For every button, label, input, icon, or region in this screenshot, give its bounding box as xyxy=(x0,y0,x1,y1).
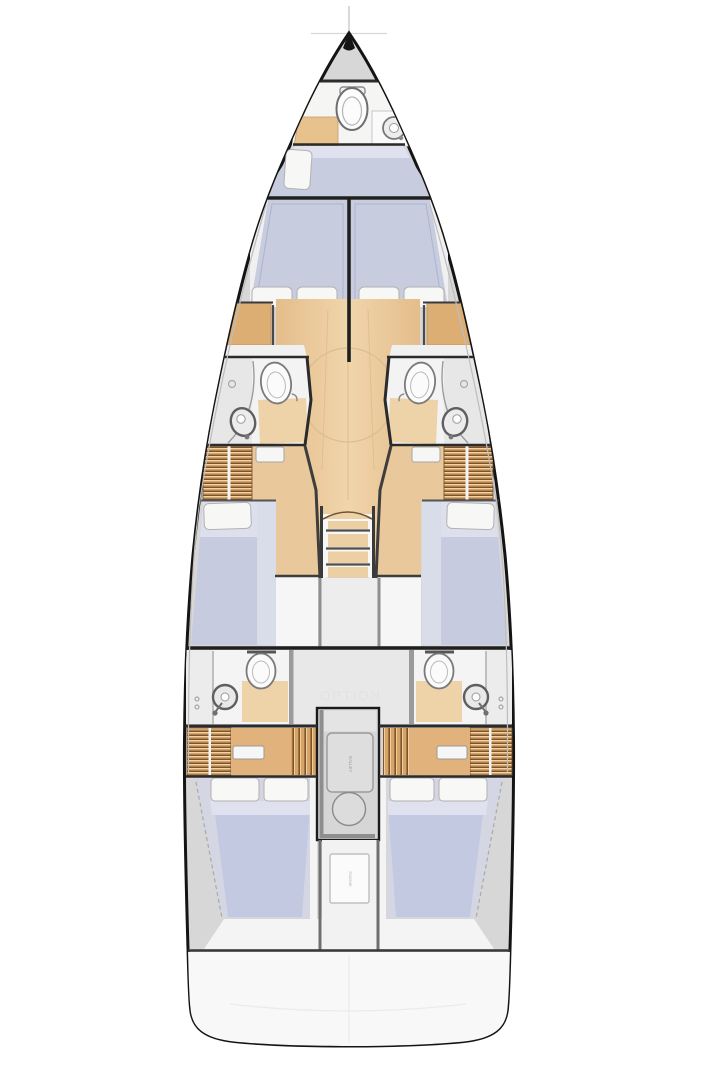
svg-text:OPTION: OPTION xyxy=(320,688,382,703)
svg-text:ENGINE: ENGINE xyxy=(348,871,353,887)
svg-text:GALLEY: GALLEY xyxy=(348,756,353,773)
